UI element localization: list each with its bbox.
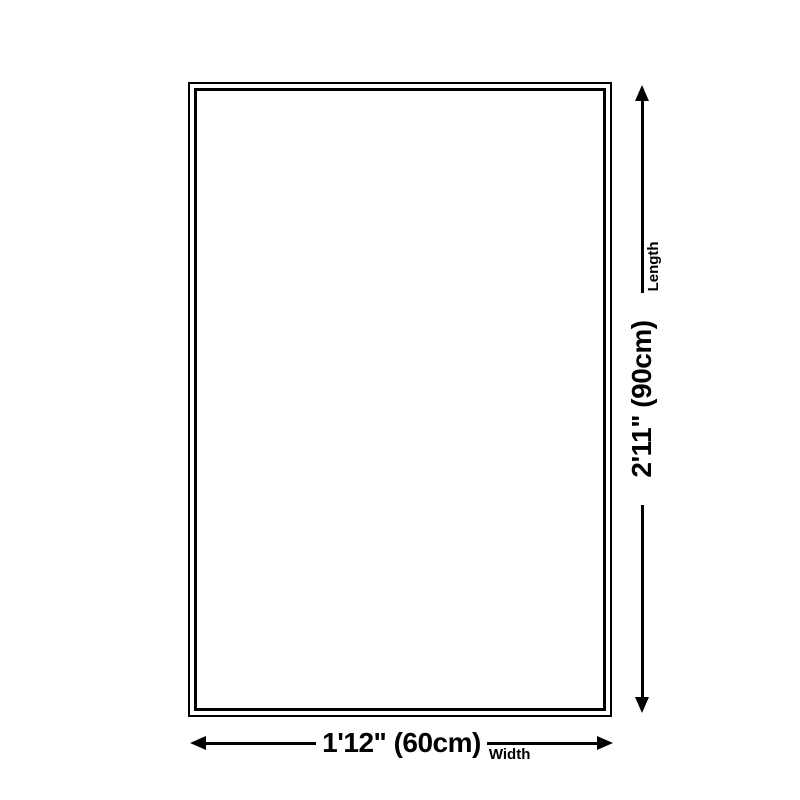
width-label: Width [489,747,531,762]
length-dimension-line-bottom [641,505,644,697]
length-label: Length [646,241,661,291]
length-dimension-arrow: 2'11" (90cm) Length [620,85,664,713]
product-outline [188,82,612,717]
arrow-up-icon [635,85,649,101]
width-dimension-line-right: Width [487,742,597,745]
width-value: 1'12" (60cm) [322,729,481,757]
length-dimension-line-top: Length [641,101,644,293]
size-diagram: 1'12" (60cm) Width 2'11" (90cm) Length [0,0,800,800]
arrow-left-icon [190,736,206,750]
length-value: 2'11" (90cm) [628,320,656,477]
width-dimension-line-left [206,742,316,745]
arrow-right-icon [597,736,613,750]
product-outline-inner-border [194,88,606,711]
arrow-down-icon [635,697,649,713]
width-dimension-arrow: 1'12" (60cm) Width [190,721,613,765]
